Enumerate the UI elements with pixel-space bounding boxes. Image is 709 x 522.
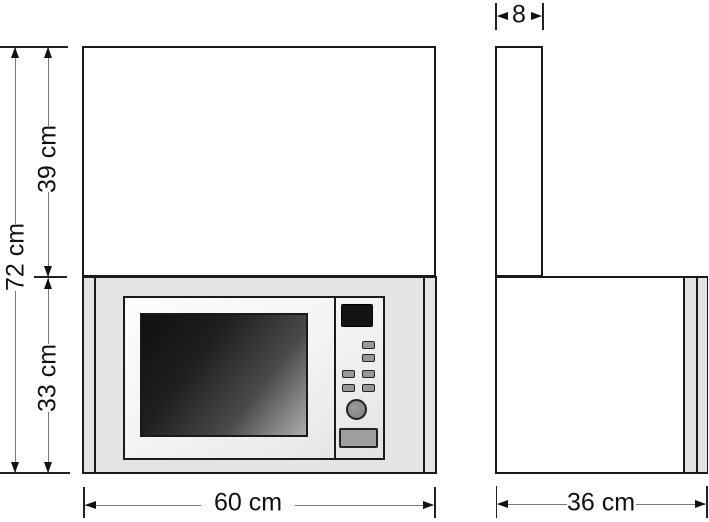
front-upper-wall-section: [82, 46, 436, 277]
installation-drawing: 72 cm 39 cm 33 cm 60 cm 8 36 cm: [0, 0, 709, 522]
dim-label-side-depth: 36 cm: [567, 491, 635, 516]
control-button: [342, 384, 355, 392]
control-panel-divider: [334, 297, 336, 459]
dim-label-total-height: 72 cm: [4, 223, 29, 291]
dim-72-arrow-bottom: [11, 462, 19, 473]
control-button: [362, 384, 375, 392]
dimension-line-39: [48, 192, 49, 276]
dim-33-arrow-top: [44, 278, 52, 289]
extension-line-36-right: [706, 486, 708, 518]
dim-8-arrow-right: [531, 12, 542, 20]
side-wall-panel: [495, 46, 543, 277]
extension-line-60-right: [434, 487, 436, 518]
dimension-line-60: [85, 505, 201, 506]
side-door-layer-front: [696, 278, 707, 472]
cabinet-side-wall-line-right: [423, 277, 425, 473]
dim-39-arrow-top: [44, 47, 52, 58]
dim-33-arrow-bottom: [44, 462, 52, 473]
dim-60-arrow-left: [85, 501, 96, 509]
cabinet-side-wall-line-left: [94, 277, 96, 473]
control-button: [342, 370, 355, 378]
dim-36-arrow-right: [695, 500, 706, 508]
control-button: [362, 341, 375, 349]
dim-72-arrow-top: [11, 47, 19, 58]
dimension-line-36: [498, 504, 567, 505]
door-open-button: [339, 428, 378, 448]
dimension-line-72: [15, 291, 16, 472]
dim-36-arrow-left: [497, 500, 508, 508]
extension-line-8-right: [542, 3, 544, 30]
dimension-line-39: [48, 48, 49, 126]
dim-label-side-top-depth: 8: [512, 3, 526, 28]
control-button: [362, 370, 375, 378]
control-knob: [346, 399, 367, 420]
side-cabinet-body: [495, 276, 708, 474]
dim-8-arrow-left: [497, 12, 508, 20]
dimension-line-60: [295, 505, 433, 506]
dim-39-arrow-bottom: [44, 266, 52, 277]
dim-label-upper-section: 39 cm: [36, 125, 61, 193]
dim-label-front-width: 60 cm: [214, 491, 282, 516]
microwave-door-window: [140, 313, 308, 437]
side-door-layer-outer: [683, 278, 696, 472]
dim-60-arrow-right: [423, 501, 434, 509]
control-panel-display: [341, 304, 373, 327]
control-button: [362, 354, 375, 362]
dimension-line-72: [15, 48, 16, 224]
dim-label-niche-height: 33 cm: [36, 344, 61, 412]
